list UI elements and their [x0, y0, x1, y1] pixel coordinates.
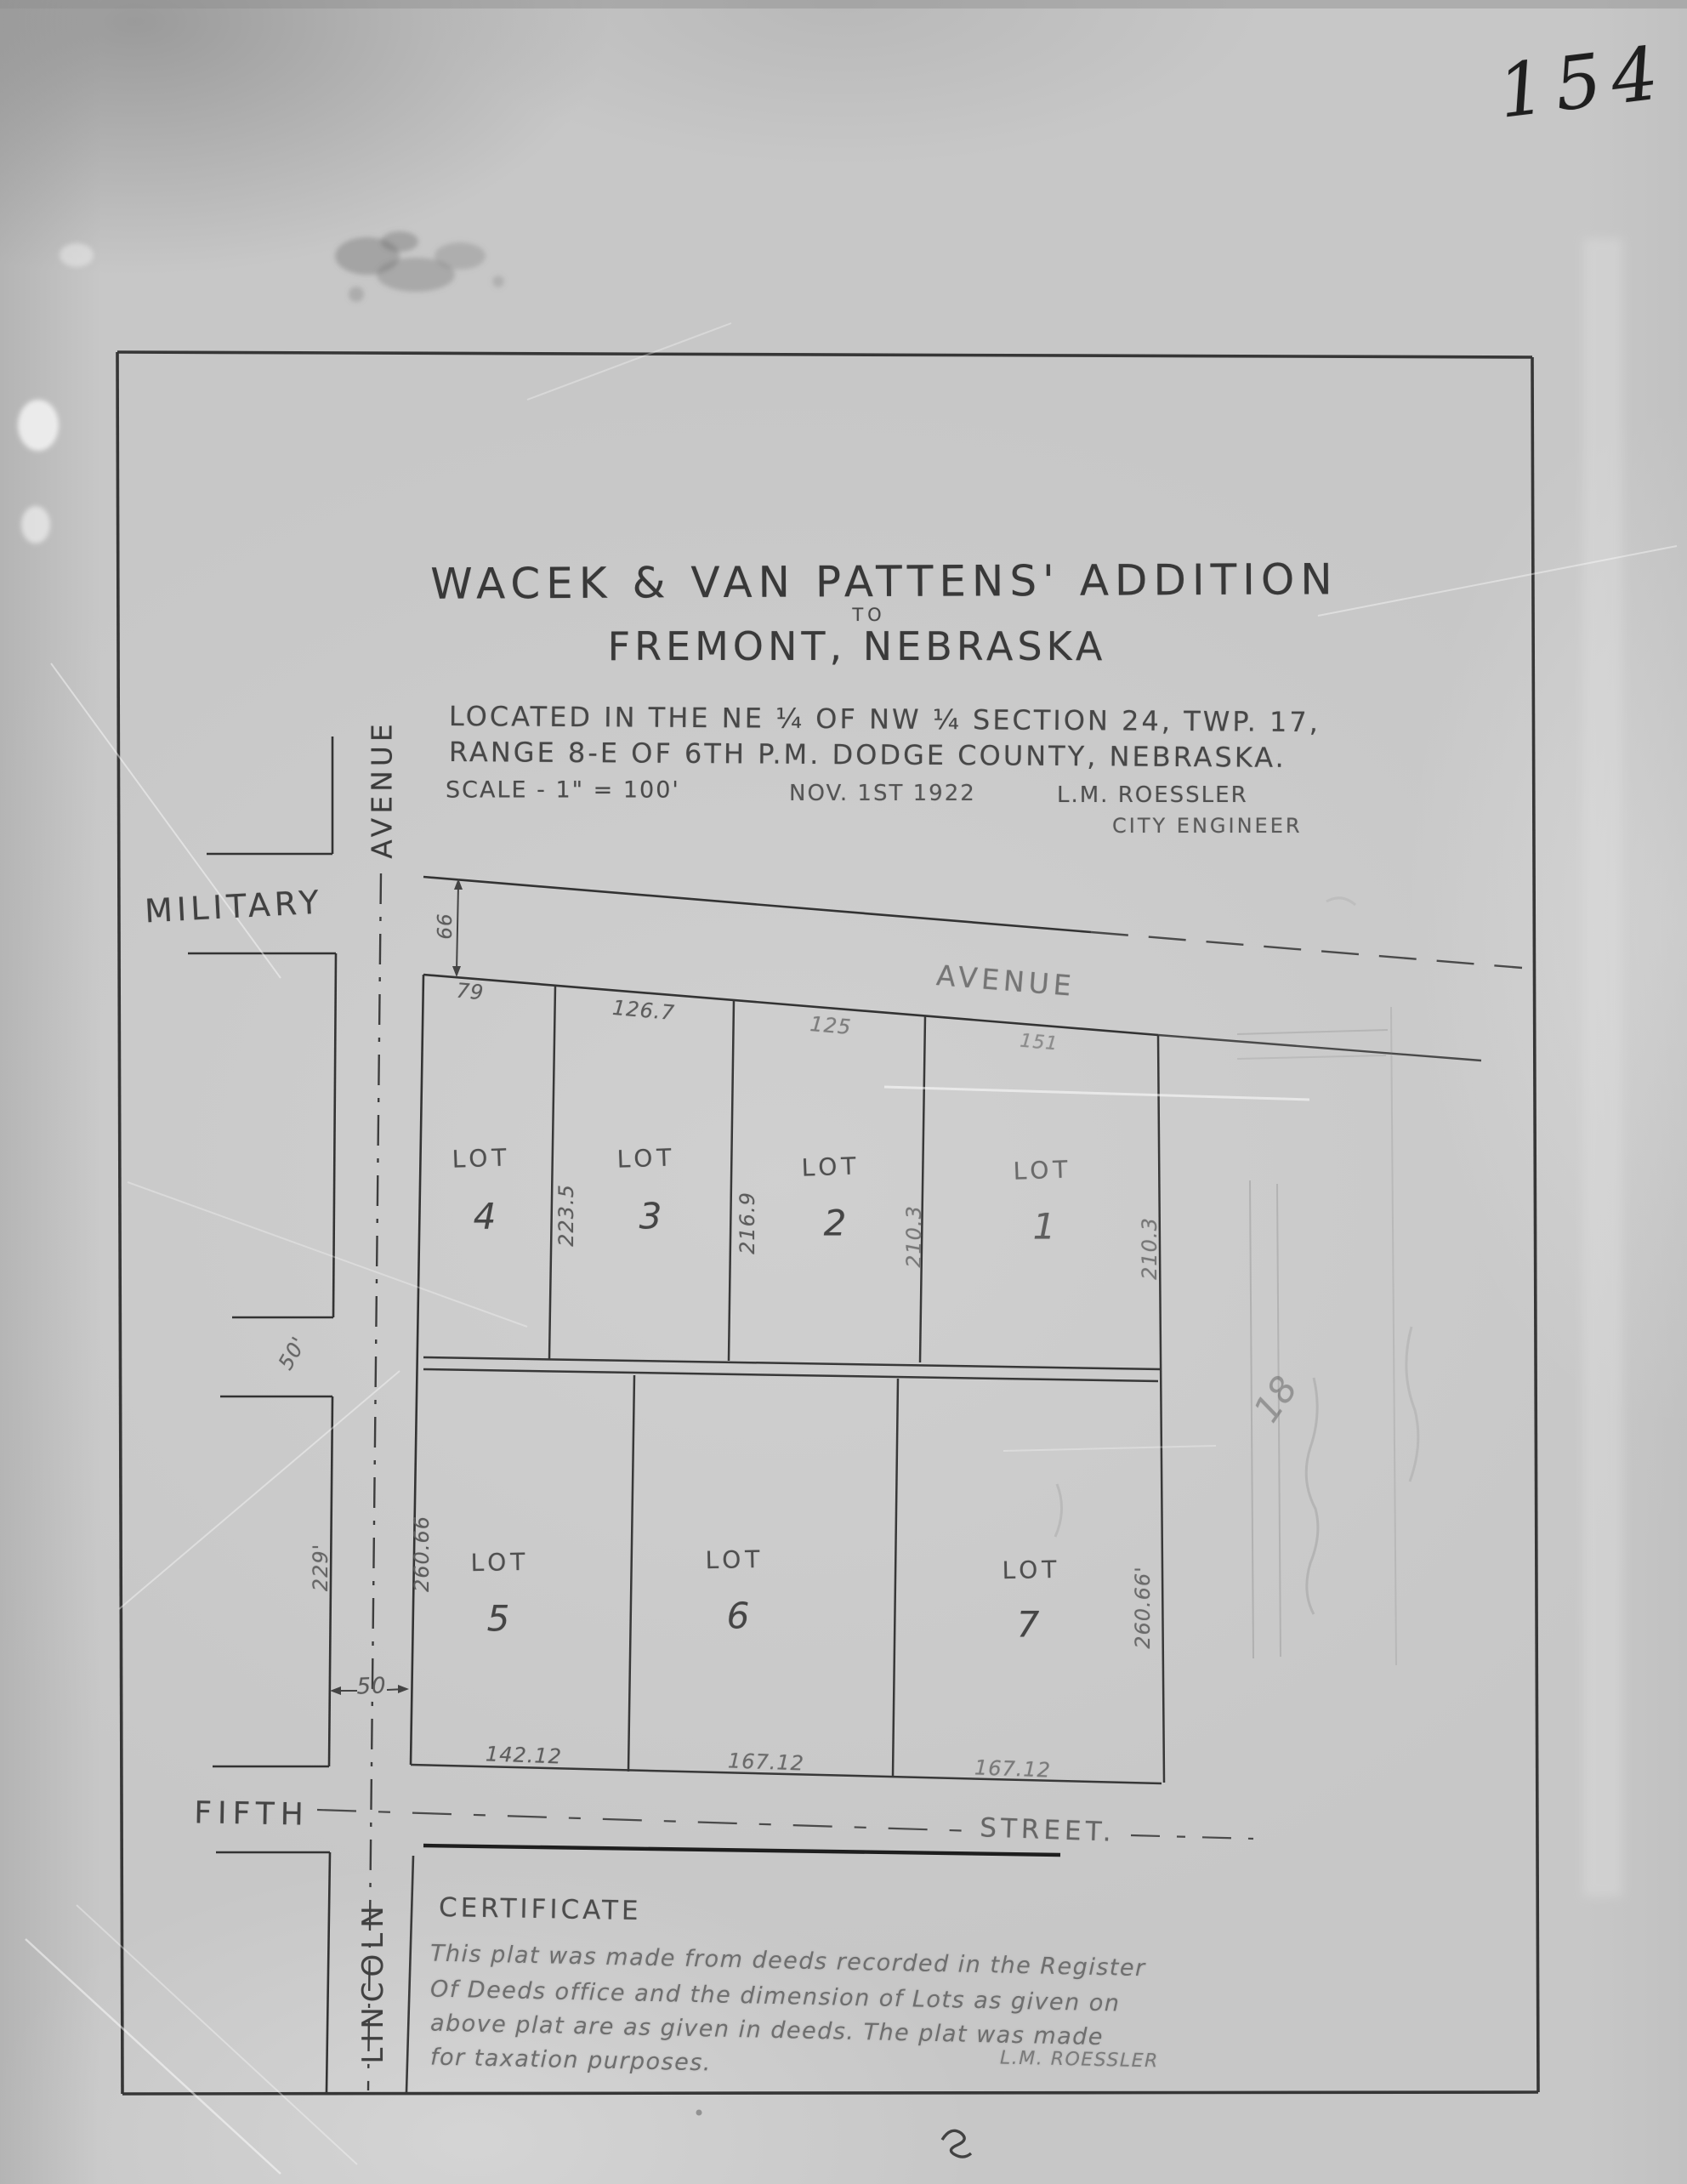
location-description-line1: LOCATED IN THE NE ¼ OF NW ¼ SECTION 24, … [449, 700, 1321, 738]
street-name-fifth: FIFTH [194, 1795, 310, 1832]
dim-west-block-side: 229' [309, 1544, 332, 1591]
scale-note: SCALE - 1" = 100' [446, 777, 680, 804]
lot-2-number: 2 [824, 1203, 847, 1244]
lot-2-label: LOT [801, 1152, 861, 1181]
plat-title-line2: FREMONT, NEBRASKA [608, 623, 1107, 669]
engineer-title: CITY ENGINEER [1112, 814, 1303, 838]
lot-1-number: 1 [1033, 1206, 1056, 1248]
street-name-fifth-street: STREET. [980, 1812, 1116, 1848]
dim-military-width: 66 [435, 913, 457, 939]
dim-lot2-front: 125 [809, 1012, 852, 1039]
dimension-arrows [330, 879, 463, 1695]
dim-lot7-bottom: 167.12 [974, 1755, 1052, 1782]
plat-date: NOV. 1ST 1922 [789, 781, 976, 806]
dim-lot2-side: 210.3 [902, 1205, 926, 1268]
lot-3-number: 3 [639, 1196, 662, 1237]
lot-4-label: LOT [452, 1143, 511, 1173]
pencil-marks [1055, 898, 1418, 1665]
certificate-signature: L.M. ROESSLER [1000, 2048, 1159, 2073]
paper-artifacts [0, 0, 1687, 1897]
upper-block-lines [423, 986, 1164, 1783]
dim-lincoln-width: 50 [356, 1673, 387, 1699]
dim-lot1-front: 151 [1019, 1031, 1059, 1055]
lot-6-label: LOT [705, 1545, 764, 1574]
lot-4-number: 4 [474, 1196, 497, 1237]
ink-smudges [335, 231, 504, 302]
dim-lot4-front: 79 [456, 979, 486, 1005]
engineer-name: L.M. ROESSLER [1057, 782, 1248, 808]
west-block-lines [188, 737, 336, 2092]
street-name-lincoln-avenue: AVENUE [366, 719, 399, 859]
scanned-plat-document: 154 WACEK & VAN PATTENS' ADDITION TO FRE… [0, 0, 1687, 2184]
street-name-lincoln: LINCOLN [356, 1901, 390, 2063]
dim-lot3-side: 216.9 [736, 1192, 759, 1254]
lot-7-number: 7 [1017, 1604, 1040, 1646]
lot-3-label: LOT [616, 1143, 676, 1173]
plat-title-line1: WACEK & VAN PATTENS' ADDITION [430, 555, 1338, 609]
dim-lot7-side: 260.66' [1131, 1566, 1155, 1649]
location-description-line2: RANGE 8-E OF 6TH P.M. DODGE COUNTY, NEBR… [449, 736, 1287, 774]
lot-5-number: 5 [487, 1598, 510, 1640]
lot-1-label: LOT [1013, 1155, 1072, 1185]
plat-linework [0, 0, 1687, 2184]
dim-lot1-side: 210.3 [1138, 1217, 1162, 1280]
plat-title-connector: TO [852, 605, 885, 625]
dim-lot5-side: 260.66 [410, 1516, 434, 1592]
lot-6-number: 6 [727, 1595, 750, 1637]
dim-lot4-side: 223.5 [554, 1184, 578, 1247]
lot-5-label: LOT [470, 1548, 529, 1577]
dim-lot5-bottom: 142.12 [486, 1742, 563, 1768]
dim-lot6-bottom: 167.12 [728, 1749, 805, 1775]
ink-marks-bottom [696, 2110, 972, 2158]
lot-7-label: LOT [1002, 1556, 1060, 1584]
certificate-heading: CERTIFICATE [439, 1892, 642, 1926]
